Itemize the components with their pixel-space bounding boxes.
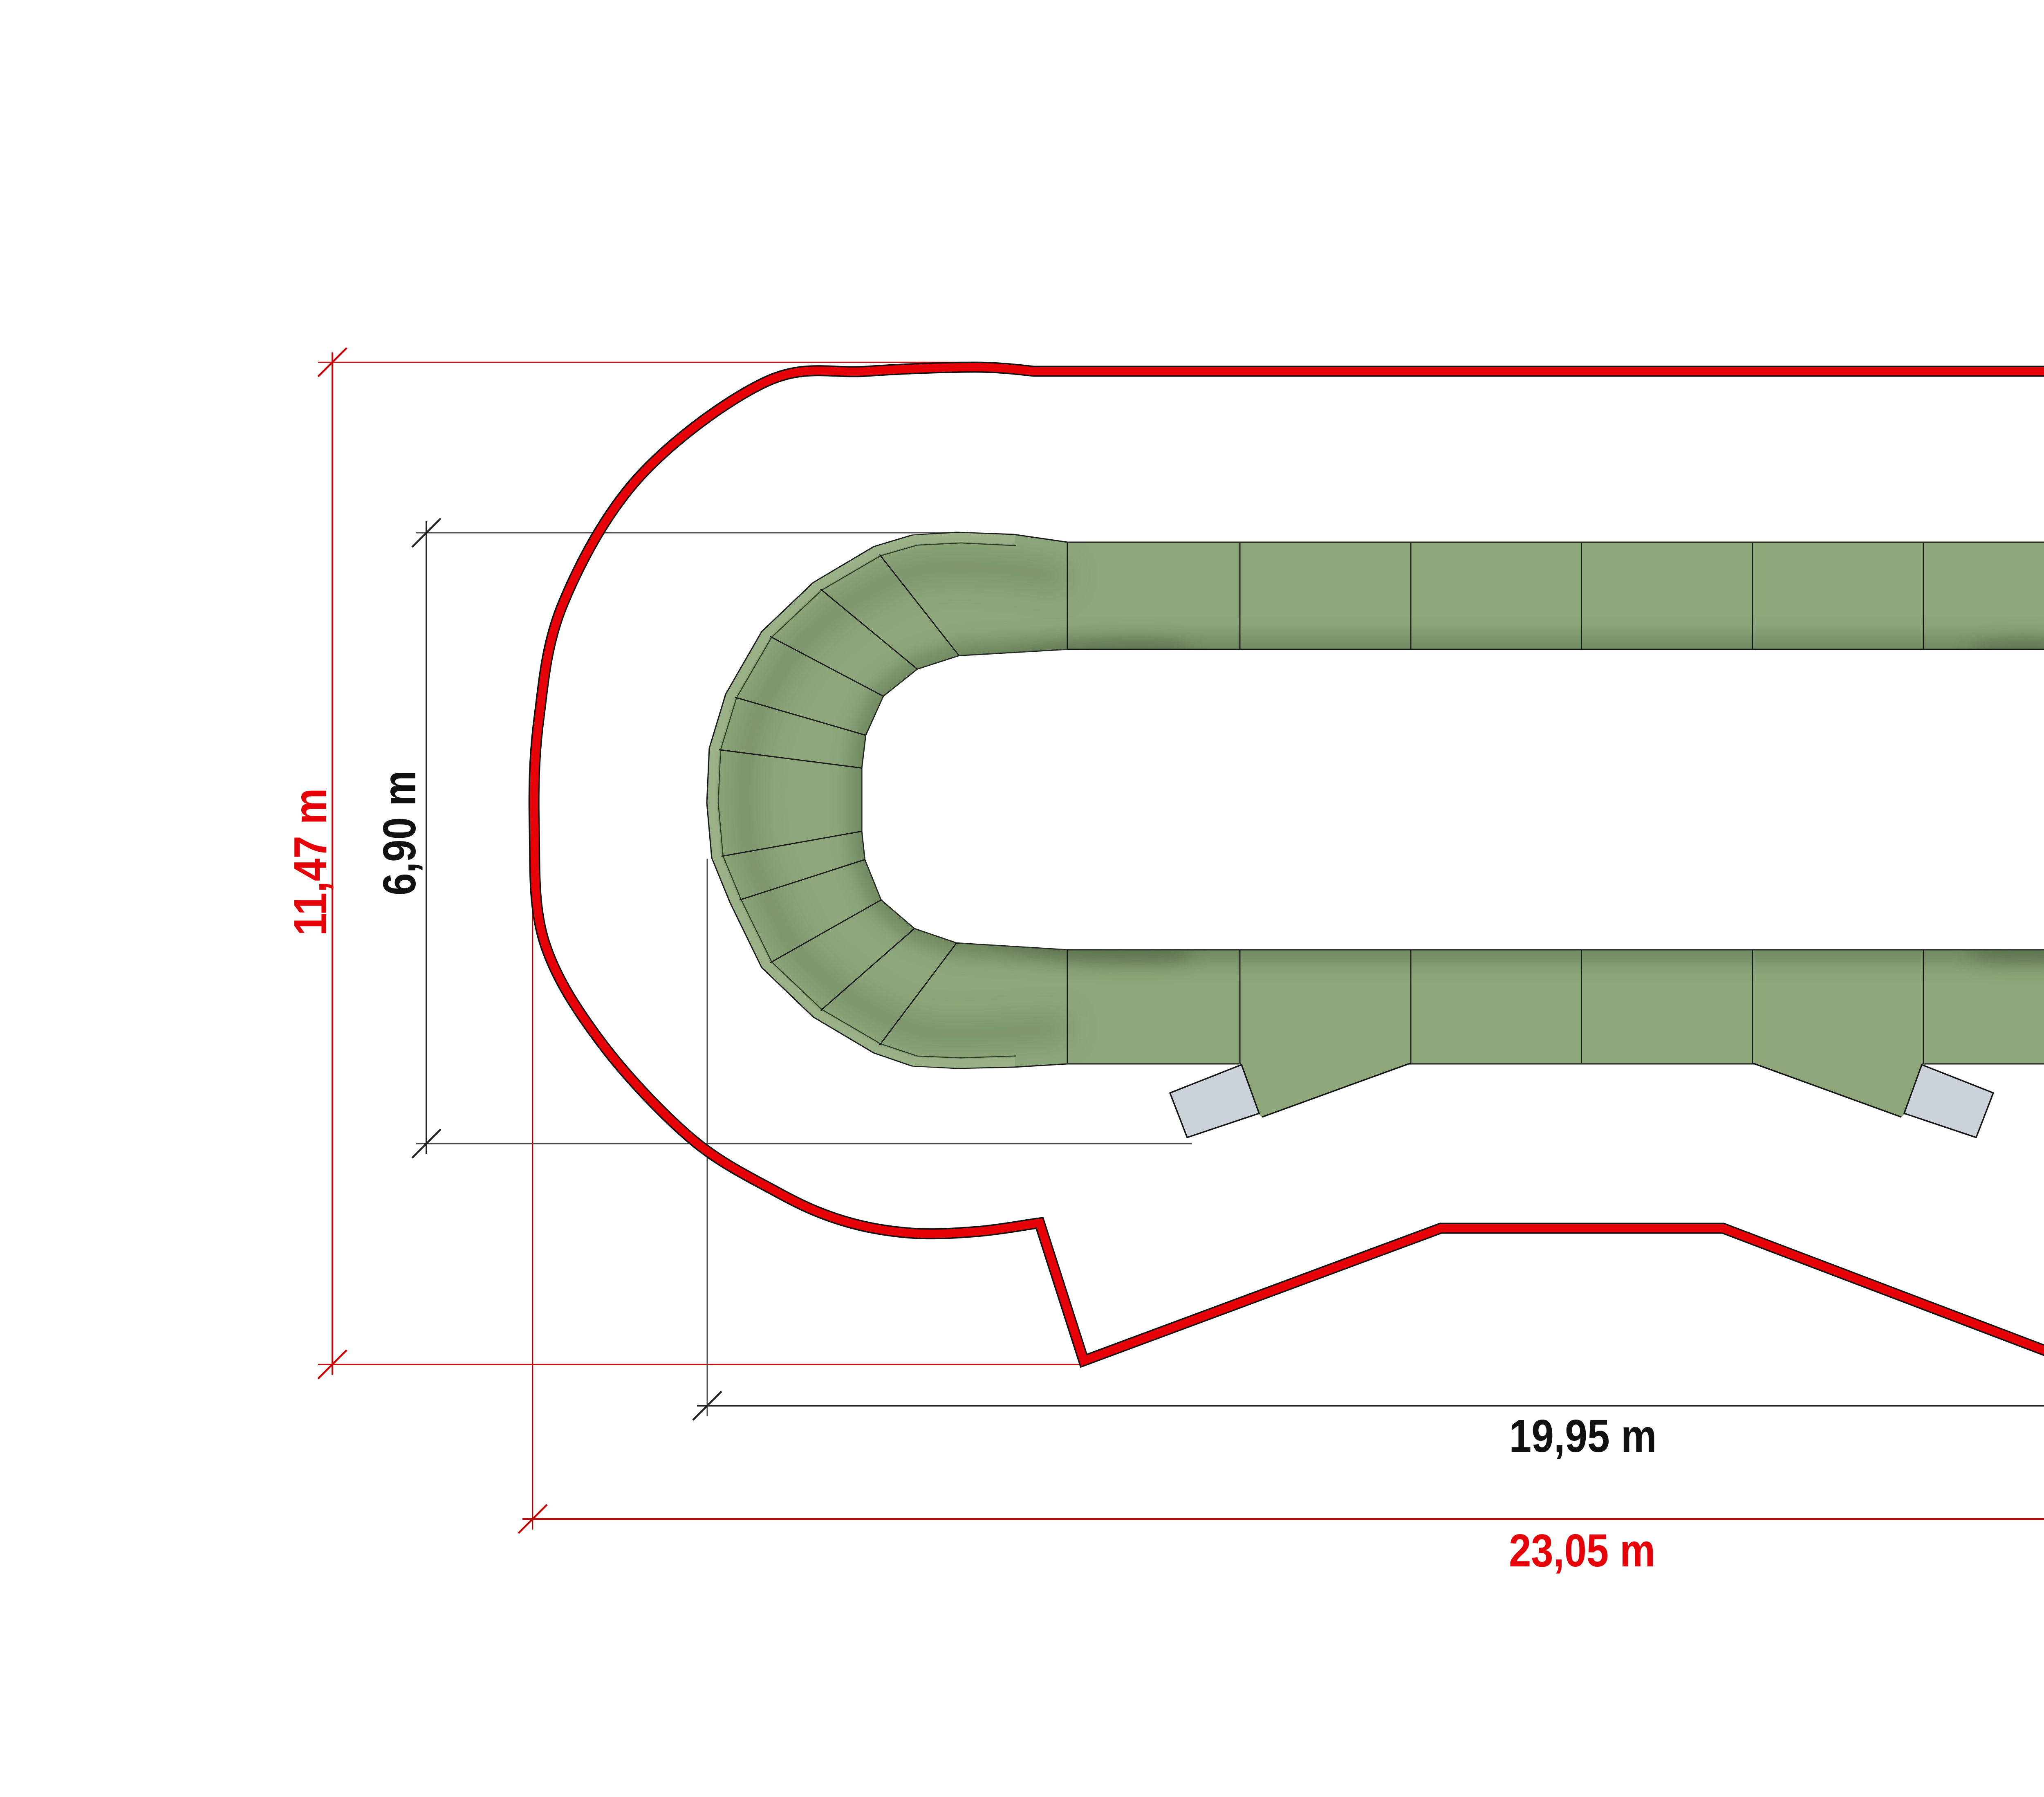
svg-text:11,47 m: 11,47 m bbox=[285, 788, 336, 936]
svg-text:23,05 m: 23,05 m bbox=[1509, 1525, 1655, 1576]
svg-text:19,95 m: 19,95 m bbox=[1509, 1410, 1657, 1462]
svg-text:6,90 m: 6,90 m bbox=[374, 770, 425, 895]
